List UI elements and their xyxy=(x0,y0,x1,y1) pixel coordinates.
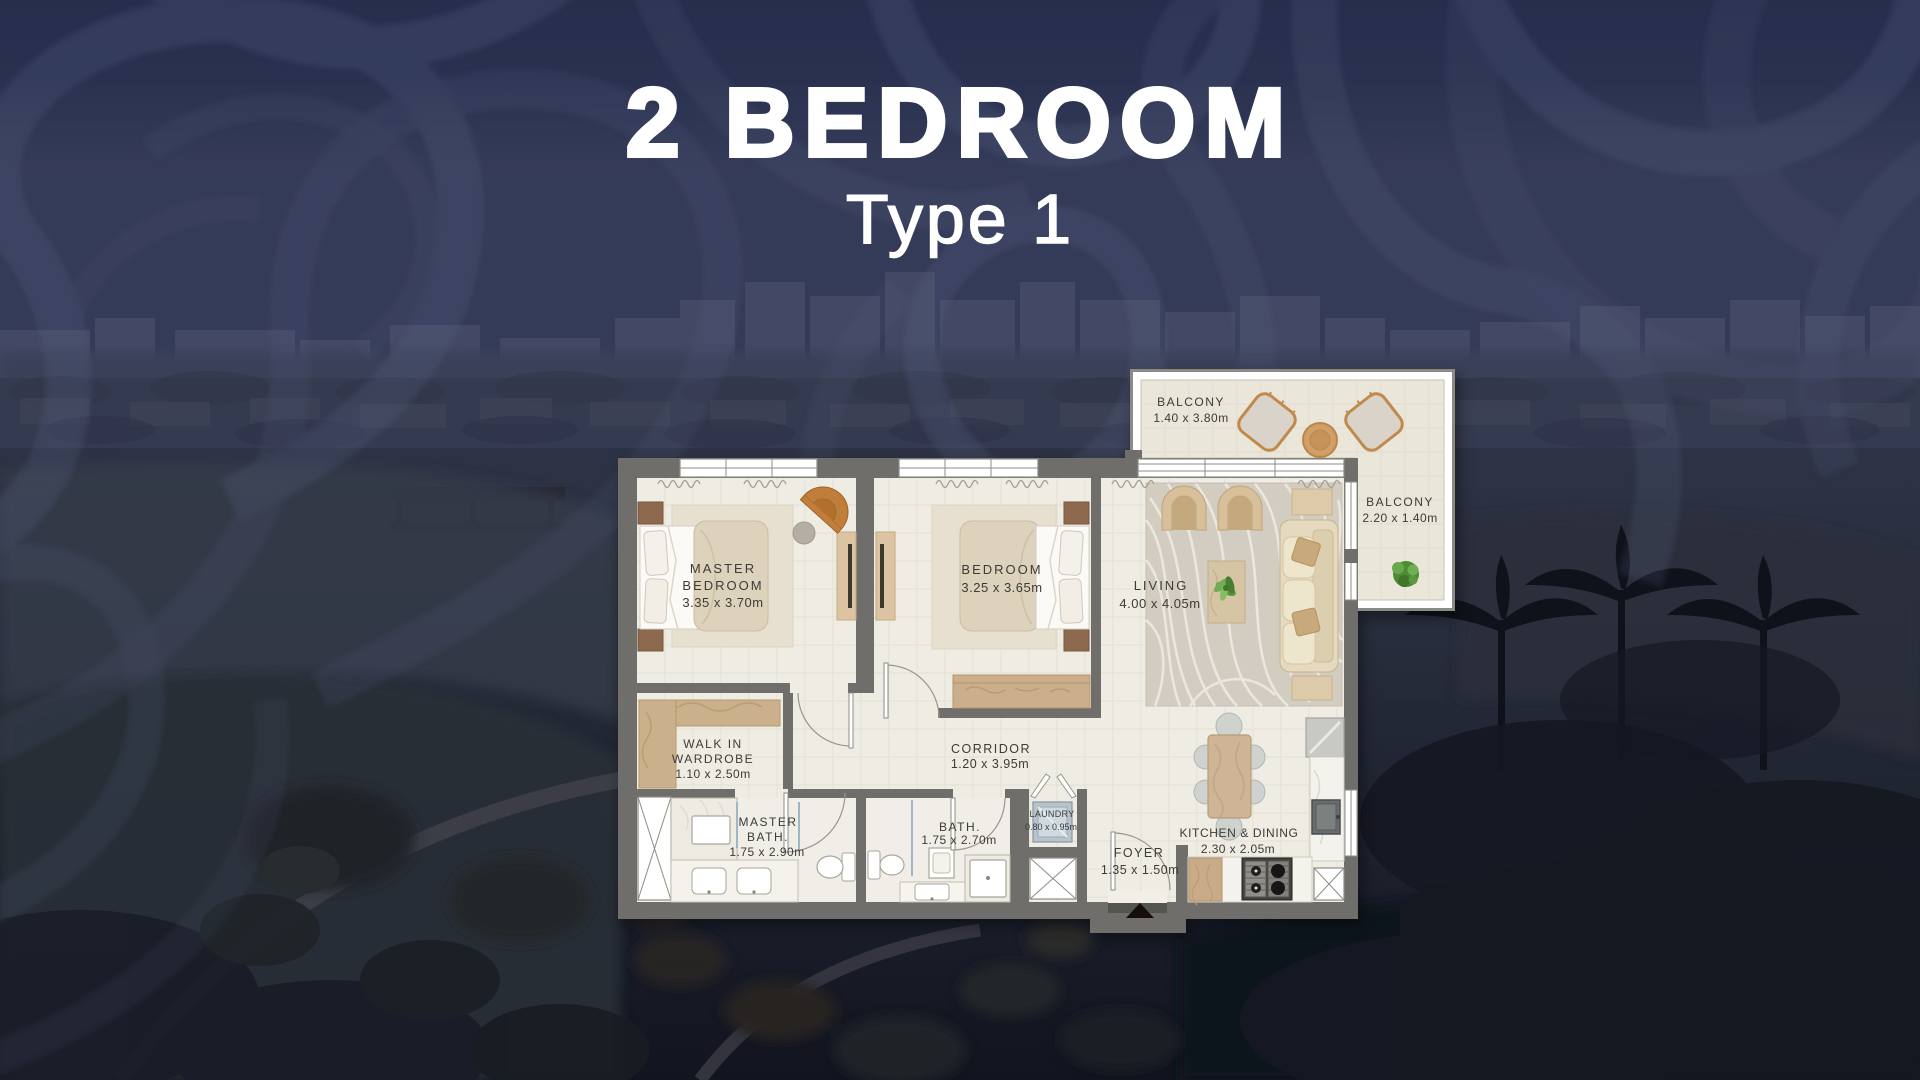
svg-text:4.00 x 4.05m: 4.00 x 4.05m xyxy=(1119,596,1200,611)
svg-text:MASTER: MASTER xyxy=(738,815,797,829)
svg-text:LIVING: LIVING xyxy=(1134,578,1189,593)
svg-text:3.35 x 3.70m: 3.35 x 3.70m xyxy=(682,595,763,610)
svg-text:BALCONY: BALCONY xyxy=(1366,495,1434,509)
svg-text:BEDROOM: BEDROOM xyxy=(682,578,763,593)
svg-text:1.35 x 1.50m: 1.35 x 1.50m xyxy=(1101,863,1179,877)
svg-text:1.75 x 2.90m: 1.75 x 2.90m xyxy=(729,845,804,859)
svg-text:WALK IN: WALK IN xyxy=(683,737,742,751)
svg-text:BALCONY: BALCONY xyxy=(1157,395,1225,409)
svg-text:LAUNDRY: LAUNDRY xyxy=(1030,809,1075,819)
svg-text:KITCHEN & DINING: KITCHEN & DINING xyxy=(1180,826,1299,840)
svg-text:0.80 x 0.95m: 0.80 x 0.95m xyxy=(1025,822,1077,832)
svg-text:MASTER: MASTER xyxy=(690,561,756,576)
svg-text:2.30 x 2.05m: 2.30 x 2.05m xyxy=(1201,842,1275,856)
svg-text:BATH.: BATH. xyxy=(939,820,981,834)
svg-text:CORRIDOR: CORRIDOR xyxy=(951,742,1031,756)
svg-text:WARDROBE: WARDROBE xyxy=(672,752,754,766)
svg-text:1.20 x 3.95m: 1.20 x 3.95m xyxy=(951,757,1029,771)
svg-text:BEDROOM: BEDROOM xyxy=(961,562,1042,577)
svg-text:BATH.: BATH. xyxy=(747,830,789,844)
svg-text:3.25 x 3.65m: 3.25 x 3.65m xyxy=(961,580,1042,595)
svg-text:1.40 x 3.80m: 1.40 x 3.80m xyxy=(1153,411,1228,425)
svg-text:FOYER: FOYER xyxy=(1114,846,1165,860)
svg-text:1.10 x 2.50m: 1.10 x 2.50m xyxy=(675,767,750,781)
svg-text:1.75 x 2.70m: 1.75 x 2.70m xyxy=(921,833,996,847)
svg-text:2.20 x 1.40m: 2.20 x 1.40m xyxy=(1362,511,1437,525)
